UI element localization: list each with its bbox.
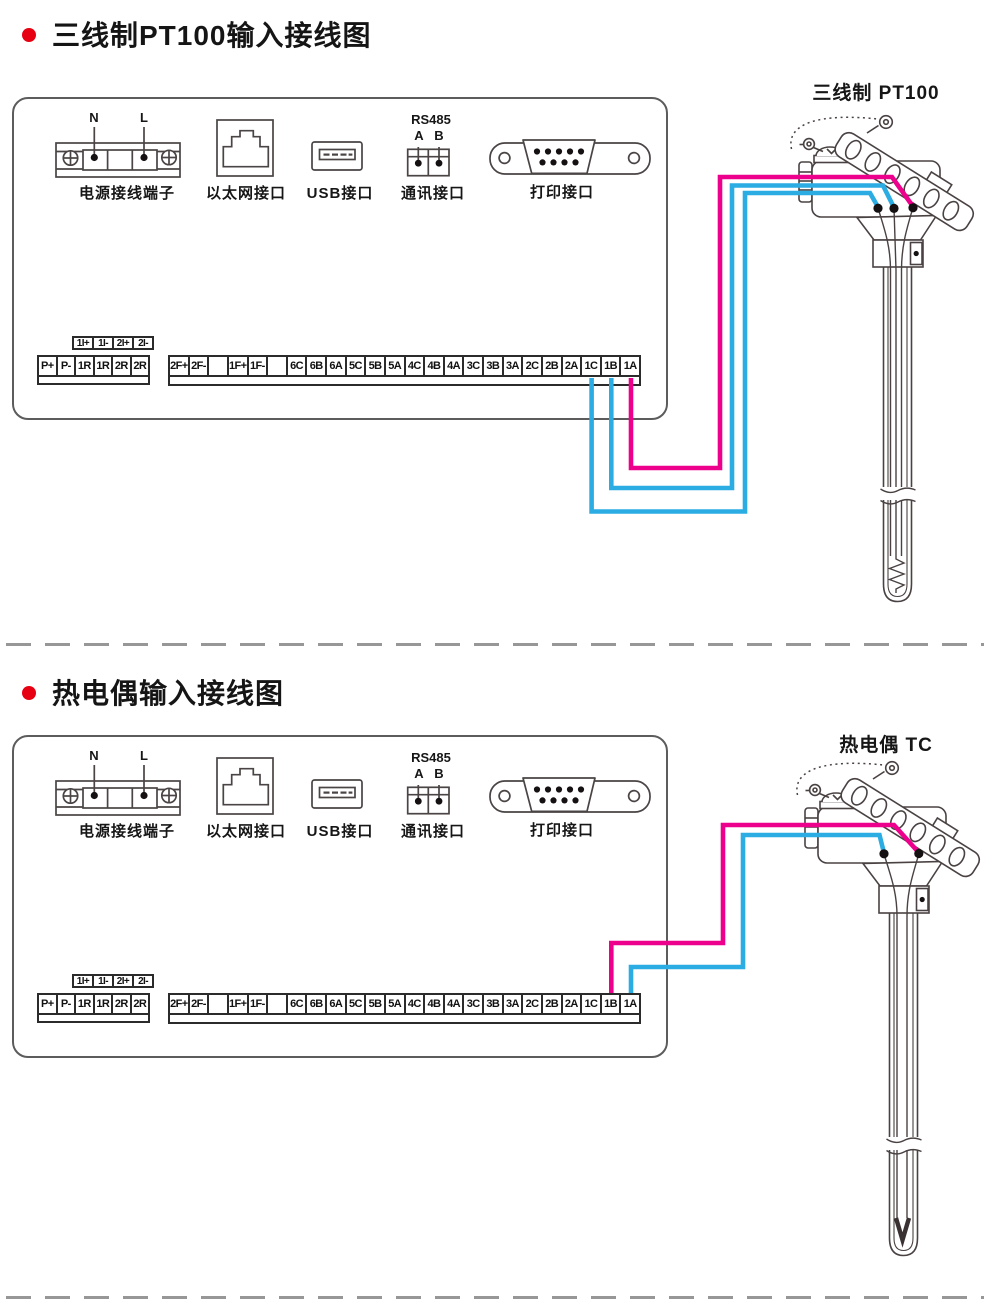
probe-terminals xyxy=(873,203,917,213)
probe-stem xyxy=(881,267,916,602)
terminal-cell: 2I+ xyxy=(114,338,134,348)
terminal-cell: 1A xyxy=(621,995,639,1013)
pt100-probe-illustration xyxy=(791,116,982,602)
probe-neck xyxy=(857,216,937,241)
terminal-cell: 2F- xyxy=(190,357,210,375)
comm-port-label: 通讯接口 xyxy=(401,820,465,841)
probe-terminals xyxy=(879,849,923,859)
terminal-cell: 1R xyxy=(95,995,114,1013)
probe-type-label: 热电偶 TC xyxy=(839,730,933,757)
terminal-cell: 1R xyxy=(76,357,95,375)
printer-port-label: 打印接口 xyxy=(530,181,594,202)
section-title: 热电偶输入接线图 xyxy=(52,672,284,712)
aux-terminal-strip: 1I+1I-2I+2I- xyxy=(72,974,154,988)
terminal-cell: 1C xyxy=(582,995,602,1013)
terminal-cell: 2F- xyxy=(190,995,210,1013)
ethernet-port-label: 以太网接口 xyxy=(206,820,286,841)
dashed-divider xyxy=(6,1296,984,1299)
wire-1a-pink xyxy=(631,177,913,468)
latch-screw-icon xyxy=(800,139,824,152)
cap-open-path-dotted-arc xyxy=(791,117,882,149)
terminal-cell: 2C xyxy=(523,357,543,375)
terminal-cell: 1B xyxy=(602,357,622,375)
cap-screw-icon xyxy=(867,116,892,133)
probe-stem xyxy=(887,913,922,1256)
probe-head-body xyxy=(812,161,940,217)
terminal-cell: 2A xyxy=(563,995,583,1013)
terminal-cell: 2R xyxy=(113,995,132,1013)
terminal-cell: 1B xyxy=(602,995,622,1013)
main-terminal-strip: 2F+2F-1F+1F-6C6B6A5C5B5A4C4B4A3C3B3A2C2B… xyxy=(168,993,641,1015)
main-terminal-strip: 2F+2F-1F+1F-6C6B6A5C5B5A4C4B4A3C3B3A2C2B… xyxy=(168,355,641,377)
section-title: 三线制PT100输入接线图 xyxy=(52,14,372,54)
terminal-cell: 1F+ xyxy=(229,995,249,1013)
terminal-cell: 1I- xyxy=(94,976,114,986)
ethernet-port-label: 以太网接口 xyxy=(206,182,286,203)
aux-terminal-strip: 1I+1I-2I+2I- xyxy=(72,336,154,350)
probe-collar xyxy=(879,886,929,913)
probe-head-body xyxy=(818,807,946,863)
terminal-cell: 3A xyxy=(504,357,524,375)
probe-neck xyxy=(863,862,943,887)
terminal-cell: 6C xyxy=(288,995,308,1013)
rs485-pin-a-label: A xyxy=(414,766,423,781)
terminal-cell: 2A xyxy=(563,357,583,375)
comm-port-label: 通讯接口 xyxy=(401,182,465,203)
terminal-cell: 3C xyxy=(464,357,484,375)
terminal-cell: 6A xyxy=(327,995,347,1013)
terminal-cell: 1I+ xyxy=(74,976,94,986)
terminal-cell xyxy=(268,995,288,1013)
usb-port-label: USB接口 xyxy=(307,820,374,841)
cable-gland-nut xyxy=(799,162,812,202)
terminal-cell: P+ xyxy=(39,357,58,375)
usb-port-label: USB接口 xyxy=(307,182,374,203)
terminal-cell: 1F- xyxy=(249,357,269,375)
terminal-cell: 1C xyxy=(582,357,602,375)
terminal-cell: 6B xyxy=(307,995,327,1013)
terminal-cell: 6C xyxy=(288,357,308,375)
terminal-cell: 2R xyxy=(113,357,132,375)
terminal-cell xyxy=(268,357,288,375)
wiring-manual-page: 三线制PT100输入接线图 N L 电源接线端子 以太网接口 USB接口 RS4… xyxy=(0,0,990,1311)
terminal-cell: 4C xyxy=(406,995,426,1013)
terminal-cell: 5A xyxy=(386,995,406,1013)
terminal-cell: 2B xyxy=(543,357,563,375)
terminal-cell xyxy=(209,995,229,1013)
cap-screw-icon xyxy=(873,762,898,779)
probe-collar xyxy=(873,240,923,267)
printer-port-label: 打印接口 xyxy=(530,819,594,840)
terminal-cell: 2I- xyxy=(134,976,152,986)
power-pin-l-label: L xyxy=(140,748,148,763)
terminal-cell: 3B xyxy=(484,357,504,375)
terminal-cell: 1I- xyxy=(94,338,114,348)
terminal-cell: 3A xyxy=(504,995,524,1013)
terminal-cell: 6B xyxy=(307,357,327,375)
latch-screw-icon xyxy=(806,785,830,798)
left-terminal-strip: P+P-1R1R2R2R xyxy=(37,355,150,377)
terminal-cell: 1A xyxy=(621,357,639,375)
cable-gland-nut xyxy=(805,808,818,848)
terminal-cell: 5C xyxy=(347,357,367,375)
tc-probe-illustration xyxy=(797,762,988,1256)
bullet-icon xyxy=(22,686,36,700)
terminal-cell: 5B xyxy=(366,357,386,375)
terminal-cell: 1F+ xyxy=(229,357,249,375)
terminal-cell: P- xyxy=(58,995,77,1013)
rs485-bus-label: RS485 xyxy=(411,750,451,765)
terminal-cell: 2I+ xyxy=(114,976,134,986)
thermocouple-junction-v xyxy=(896,1218,909,1240)
terminal-cell xyxy=(209,357,229,375)
terminal-cell: 4B xyxy=(425,357,445,375)
terminal-cell: 2R xyxy=(132,995,149,1013)
terminal-cell: 5C xyxy=(347,995,367,1013)
cap-open-path-dotted-arc xyxy=(797,763,888,795)
terminal-cell: 4C xyxy=(406,357,426,375)
terminal-cell: 3B xyxy=(484,995,504,1013)
terminal-cell: P+ xyxy=(39,995,58,1013)
left-terminal-strip: P+P-1R1R2R2R xyxy=(37,993,150,1015)
terminal-cell: 5A xyxy=(386,357,406,375)
terminal-cell: 4B xyxy=(425,995,445,1013)
terminal-cell: 6A xyxy=(327,357,347,375)
terminal-cell: 4A xyxy=(445,357,465,375)
terminal-cell: 3C xyxy=(464,995,484,1013)
rs485-pin-b-label: B xyxy=(434,766,443,781)
terminal-cell: P- xyxy=(58,357,77,375)
rs485-pin-a-label: A xyxy=(414,128,423,143)
terminal-cell: 1R xyxy=(76,995,95,1013)
power-pin-l-label: L xyxy=(140,110,148,125)
terminal-cell: 1I+ xyxy=(74,338,94,348)
power-port-label: 电源接线端子 xyxy=(79,820,175,841)
section-thermocouple: 热电偶输入接线图 N L 电源接线端子 以太网接口 USB接口 RS485 A … xyxy=(0,638,990,1311)
rs485-pin-b-label: B xyxy=(434,128,443,143)
bullet-icon xyxy=(22,28,36,42)
probe-internal-wires xyxy=(884,854,919,1241)
terminal-cell: 5B xyxy=(366,995,386,1013)
power-pin-n-label: N xyxy=(89,748,98,763)
terminal-cell: 2R xyxy=(132,357,149,375)
terminal-cell: 4A xyxy=(445,995,465,1013)
power-port-label: 电源接线端子 xyxy=(79,182,175,203)
terminal-cell: 2F+ xyxy=(170,357,190,375)
terminal-cell: 1R xyxy=(95,357,114,375)
rtd-resistor-element xyxy=(890,556,905,593)
power-pin-n-label: N xyxy=(89,110,98,125)
terminal-cell: 1F- xyxy=(249,995,269,1013)
terminal-cell: 2F+ xyxy=(170,995,190,1013)
section-pt100: 三线制PT100输入接线图 N L 电源接线端子 以太网接口 USB接口 RS4… xyxy=(0,0,990,645)
wire-1a-cyan xyxy=(631,835,884,993)
terminal-cell: 2I- xyxy=(134,338,152,348)
terminal-cell: 2B xyxy=(543,995,563,1013)
terminal-cell: 2C xyxy=(523,995,543,1013)
rs485-bus-label: RS485 xyxy=(411,112,451,127)
probe-internal-wires xyxy=(878,208,913,594)
probe-cap xyxy=(832,122,982,234)
probe-type-label: 三线制 PT100 xyxy=(812,78,939,105)
probe-cap xyxy=(838,768,988,880)
